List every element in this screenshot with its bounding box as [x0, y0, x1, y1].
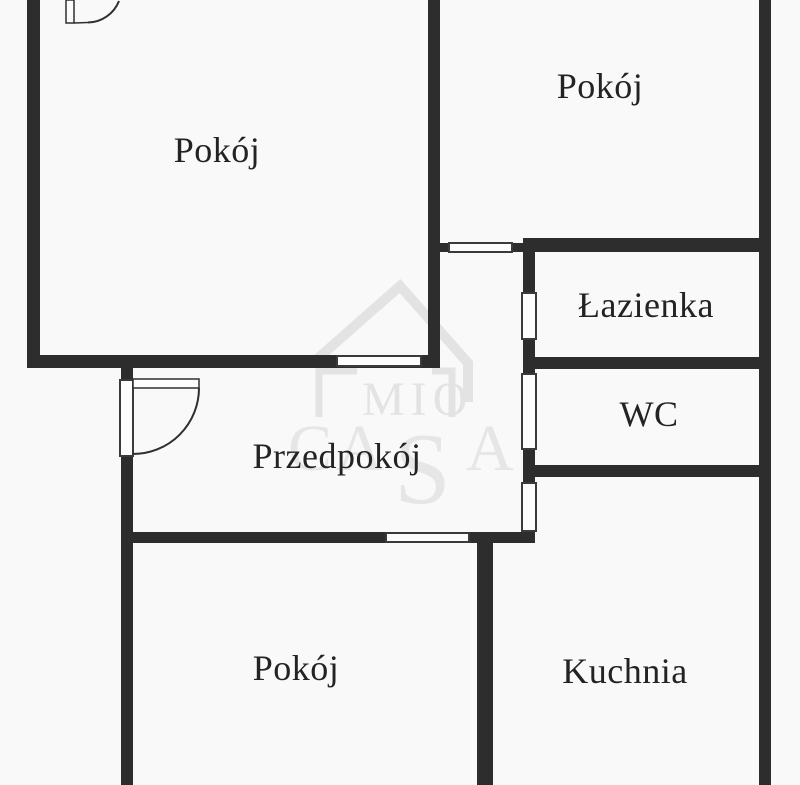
wall-wc-bottom [523, 465, 771, 477]
svg-text:A: A [466, 412, 514, 485]
room-label-pokoj-top-left: Pokój [174, 129, 261, 171]
wall-left-top-room [27, 0, 40, 368]
wall-bathroom-bottom [523, 357, 771, 369]
wall-bathroom-top [523, 238, 771, 252]
doorway-kitchen [521, 482, 537, 532]
doorway-top-right-room [448, 242, 513, 253]
watermark-house-icon [316, 286, 468, 417]
wall-kitchen-left [477, 532, 493, 785]
floor-plan-canvas: MIO C A S A Pokój Pokój [0, 0, 800, 785]
room-label-wc: WC [620, 393, 679, 435]
room-label-pokoj-bottom: Pokój [253, 647, 340, 689]
doorway-entrance [119, 379, 134, 457]
doorway-bathroom [521, 292, 537, 340]
room-label-kuchnia: Kuchnia [562, 650, 687, 692]
doorway-bottom-room [385, 532, 470, 543]
wall-hall-bottom [133, 532, 535, 543]
door-swing-top-left-icon [66, 0, 119, 23]
room-label-pokoj-top-right: Pokój [557, 65, 644, 107]
wall-divider-top-rooms [428, 0, 440, 360]
room-label-przedpokoj: Przedpokój [253, 435, 422, 477]
doorway-wc [521, 373, 537, 450]
room-label-lazienka: Łazienka [578, 284, 714, 326]
wall-right-exterior [759, 0, 771, 785]
door-swing-entrance-icon [133, 379, 199, 454]
watermark-text-top: MIO [362, 373, 473, 426]
doorway-top-left-room [336, 355, 422, 367]
